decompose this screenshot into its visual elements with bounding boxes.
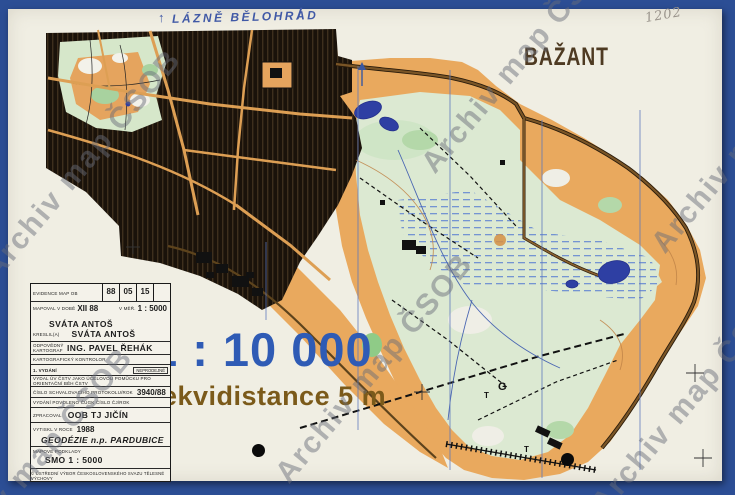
vydani-label: 1. VYDÁNÍ: [31, 368, 57, 373]
map-label-g: G: [498, 381, 507, 393]
knoll: [494, 234, 506, 246]
evidence-cell: 88: [103, 284, 120, 301]
table-row-zpracoval: ZPRACOVAL OOB TJ JIČÍN: [31, 408, 170, 423]
mapoval-value: XII 88: [77, 304, 98, 313]
table-row-povoleno: VYDÁNÍ POVOLENO ČÚGK ČÍSLO ČJ/ROK: [31, 398, 170, 408]
mer-value: 1 : 5000: [138, 304, 167, 313]
handwritten-arrow: ↑: [158, 10, 165, 25]
map-symbol-t: T: [484, 391, 489, 400]
copyright-note: © ÚSTŘEDNÍ VÝBOR ČESKOSLOVENSKÉHO SVAZU …: [31, 471, 170, 481]
zpracoval-label: ZPRACOVAL: [31, 413, 62, 418]
table-row-vydal: VYDAL ÚV ČSTV JAKO ÚČELOVOU POMŮCKU PRO …: [31, 376, 170, 387]
vytiskl-value: 1988: [77, 425, 95, 434]
table-row-vytiskl: VYTISKL V ROCE 1988 GEODÉZIE n.p. PARDUB…: [31, 423, 170, 447]
protokol-label: ČÍSLO SCHVALOVACÍHO PROTOKOLU/ROK: [31, 390, 133, 395]
table-row-mapper: SVÁTA ANTOŠ: [31, 314, 170, 327]
printer-name: GEODÉZIE n.p. PARDUBICE: [31, 435, 170, 445]
evidence-cell: 15: [137, 284, 154, 301]
evidence-label: EVIDENCE MAP OB: [31, 289, 102, 296]
punch-hole: [252, 444, 265, 457]
podklady-value: SMO 1 : 5000: [31, 454, 170, 465]
table-row-evidence: EVIDENCE MAP OB 88 05 15: [31, 284, 170, 302]
map-equidistance: ekvidistance 5 m: [162, 381, 386, 412]
table-row-kartograf: ODPOVĚDNÝ KARTOGRAF ING. PAVEL ŘEHÁK: [31, 342, 170, 355]
neprodejne-badge: NEPRODEJNÉ: [133, 367, 168, 374]
evidence-cell: [154, 284, 170, 301]
mapper-name: SVÁTA ANTOŠ: [49, 319, 113, 327]
table-row-protokol: ČÍSLO SCHVALOVACÍHO PROTOKOLU/ROK 3940/8…: [31, 387, 170, 398]
mer-label: V MĚŘ.: [119, 306, 136, 311]
zpracoval-value: OOB TJ JIČÍN: [68, 410, 129, 420]
table-row-mapoval: MAPOVAL V DOBĚ XII 88 V MĚŘ. 1 : 5000: [31, 302, 170, 314]
map-scale: 1 : 10 000: [151, 322, 373, 377]
small-pond: [126, 102, 131, 107]
kartograf-label: ODPOVĚDNÝ KARTOGRAF: [31, 343, 67, 353]
kontrolor-label: KARTOGRAFICKÝ KONTROLOR: [31, 357, 106, 362]
vydal-note: VYDAL ÚV ČSTV JAKO ÚČELOVOU POMŮCKU PRO …: [31, 376, 170, 386]
building-block: [262, 62, 292, 88]
kreslil-value: SVÁTA ANTOŠ: [72, 329, 136, 339]
mapoval-label: MAPOVAL V DOBĚ: [31, 306, 75, 311]
vytiskl-label: VYTISKL V ROCE: [31, 427, 73, 432]
protokol-value: 3940/88: [137, 388, 166, 397]
kartograf-value: ING. PAVEL ŘEHÁK: [67, 343, 153, 353]
table-row-podklady: MAPOVÉ PODKLADY SMO 1 : 5000: [31, 447, 170, 469]
table-row-kreslil: KRESLIL(A) SVÁTA ANTOŠ: [31, 327, 170, 342]
kreslil-label: KRESLIL(A): [31, 332, 60, 337]
map-info-table: EVIDENCE MAP OB 88 05 15 MAPOVAL V DOBĚ …: [30, 283, 171, 482]
podklady-label: MAPOVÉ PODKLADY: [31, 447, 170, 454]
table-row-kontrolor: KARTOGRAFICKÝ KONTROLOR: [31, 355, 170, 365]
evidence-cell: 05: [120, 284, 137, 301]
map-symbol-t: T: [524, 445, 529, 454]
table-row-vydani: 1. VYDÁNÍ NEPRODEJNÉ: [31, 365, 170, 376]
map-title: BAŽANT: [524, 42, 609, 72]
povoleno-note: VYDÁNÍ POVOLENO ČÚGK ČÍSLO ČJ/ROK: [31, 400, 130, 405]
table-row-copyright: © ÚSTŘEDNÍ VÝBOR ČESKOSLOVENSKÉHO SVAZU …: [31, 469, 170, 483]
scanned-map-page: G T T BAŽANT 1 : 10 000 ekvidistance 5 m…: [0, 0, 735, 495]
punch-hole: [561, 453, 574, 466]
